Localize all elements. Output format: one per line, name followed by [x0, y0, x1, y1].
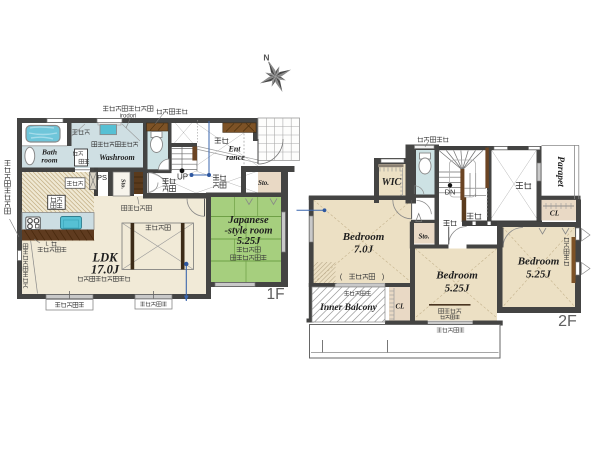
svg-text:5.25J: 5.25J	[526, 269, 551, 281]
svg-text:Bedroom: Bedroom	[435, 270, 478, 282]
svg-text:L: L	[45, 242, 48, 248]
svg-text:CL: CL	[550, 209, 560, 218]
svg-text:2F: 2F	[558, 313, 577, 330]
svg-text:17.0J: 17.0J	[91, 263, 120, 277]
svg-text:5.25J: 5.25J	[237, 236, 261, 247]
svg-text:Sto.: Sto.	[258, 179, 269, 187]
svg-text:UP: UP	[177, 173, 188, 182]
svg-text:Bedroom: Bedroom	[342, 231, 385, 243]
svg-text:DN: DN	[445, 188, 456, 197]
svg-text:7.0J: 7.0J	[354, 244, 374, 256]
svg-text:Washroom: Washroom	[99, 153, 134, 162]
svg-text:): )	[382, 274, 384, 281]
svg-text:PS: PS	[97, 173, 107, 182]
svg-text:N: N	[263, 53, 269, 63]
svg-text:1F: 1F	[266, 286, 284, 303]
svg-text:rance: rance	[226, 153, 245, 162]
svg-text:-style room: -style room	[224, 226, 272, 237]
svg-text:Inner Balcony: Inner Balcony	[319, 303, 378, 313]
svg-text:room: room	[41, 156, 57, 165]
svg-text:Japanese: Japanese	[227, 215, 269, 226]
svg-text:Parapet: Parapet	[555, 156, 565, 187]
svg-text:5.25J: 5.25J	[445, 283, 470, 295]
svg-text:Bedroom: Bedroom	[517, 256, 560, 268]
svg-text:WIC: WIC	[382, 177, 402, 188]
svg-text:irodori: irodori	[120, 114, 137, 120]
svg-text:CL: CL	[396, 303, 405, 311]
svg-text:Sto.: Sto.	[120, 179, 127, 190]
svg-text:Sto.: Sto.	[418, 233, 429, 241]
